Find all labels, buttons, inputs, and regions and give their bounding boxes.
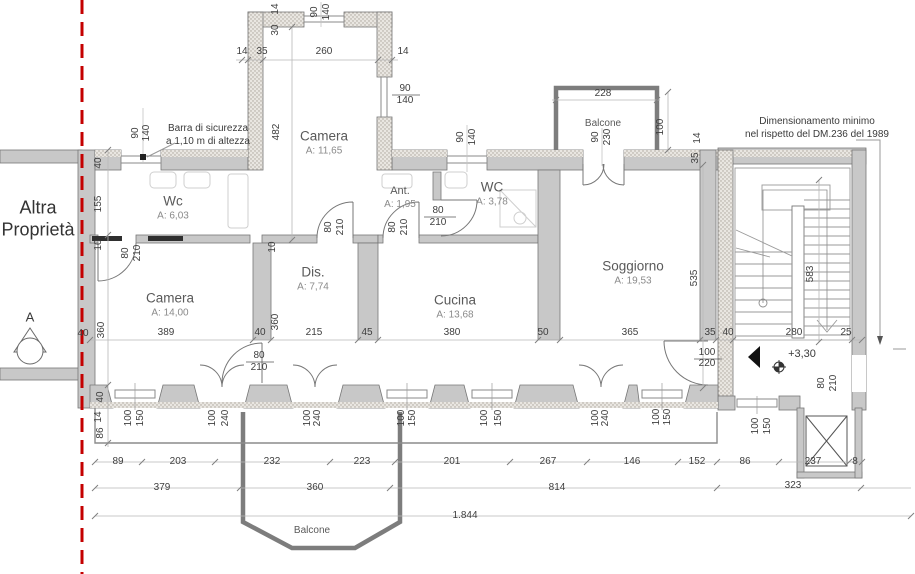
dim-label: 14	[693, 132, 703, 143]
dim-label: 210	[430, 218, 447, 228]
dim-label: 80	[253, 351, 264, 361]
dim-label: 210	[336, 219, 346, 236]
dim-label: 360	[307, 483, 324, 493]
dim-label: 260	[316, 47, 333, 57]
dim-label: 223	[354, 457, 371, 467]
room-area: A: 13,68	[434, 309, 476, 322]
dim-label: 535	[690, 270, 700, 287]
room-area: A: 3,78	[476, 196, 508, 209]
room-area: A: 19,53	[602, 275, 664, 288]
dim-label: 90	[399, 84, 410, 94]
dim-label: 10	[268, 241, 278, 252]
dm-note: Dimensionamento minimo nel rispetto del …	[745, 115, 889, 141]
dim-label: 150	[494, 410, 504, 427]
dim-label: 14	[397, 47, 408, 57]
dim-label: 40	[94, 157, 104, 168]
dim-label: 90	[131, 127, 141, 138]
labels-layer: Altra Proprietà Barra di sicurezza a 1,1…	[0, 0, 915, 574]
dim-label: 100	[124, 410, 134, 427]
dim-label: 100	[480, 410, 490, 427]
section-marker-label: A	[26, 310, 35, 327]
room-name: Wc	[157, 193, 189, 210]
room-area: A: 14,00	[146, 307, 194, 320]
dim-label: 583	[806, 266, 816, 283]
dim-label: 80	[817, 377, 827, 388]
dim-label: 86	[96, 427, 106, 438]
dim-label: 280	[786, 328, 803, 338]
room-label: Balcone	[294, 525, 330, 538]
dim-label: 360	[271, 314, 281, 331]
room-name: WC	[476, 179, 508, 196]
dim-label: 360	[97, 322, 107, 339]
dim-label: 152	[689, 457, 706, 467]
dim-label: 240	[221, 410, 231, 427]
room-label: WCA: 3,78	[476, 179, 508, 208]
dim-label: 89	[112, 457, 123, 467]
dim-label: 40	[254, 328, 265, 338]
floor-plan: Altra Proprietà Barra di sicurezza a 1,1…	[0, 0, 915, 574]
dim-label: 146	[624, 457, 641, 467]
room-area: A: 11,65	[300, 145, 348, 158]
dim-label: 203	[170, 457, 187, 467]
dim-label: 210	[251, 363, 268, 373]
room-name: Ant.	[384, 185, 416, 199]
dim-label: 80	[388, 221, 398, 232]
room-label: WcA: 6,03	[157, 193, 189, 222]
room-label: Ant.A: 1,95	[384, 185, 416, 211]
dim-label: 40	[722, 328, 733, 338]
dim-label: 140	[468, 129, 478, 146]
dim-label: 100	[652, 409, 662, 426]
dim-label: 100	[656, 119, 666, 136]
dim-label: 150	[763, 418, 773, 435]
dim-label: 150	[136, 410, 146, 427]
dim-label: 228	[595, 89, 612, 99]
dim-label: 150	[663, 409, 673, 426]
dim-label: 14	[271, 3, 281, 14]
dim-label: 240	[601, 410, 611, 427]
dim-label: 230	[603, 129, 613, 146]
room-label: Dis.A: 7,74	[297, 264, 329, 293]
dim-label: 80	[432, 206, 443, 216]
dim-label: 100	[751, 418, 761, 435]
dim-label: 210	[829, 375, 839, 392]
room-name: Dis.	[297, 264, 329, 281]
dim-label: 379	[154, 483, 171, 493]
dim-label: 140	[322, 4, 332, 21]
room-label: CameraA: 14,00	[146, 290, 194, 319]
dim-label: 100	[699, 348, 716, 358]
adjacent-property-line2: Proprietà	[1, 219, 74, 241]
dim-label: 30	[271, 24, 281, 35]
dim-label: 14	[236, 47, 247, 57]
dim-label: 35	[256, 47, 267, 57]
security-bar-line2: a 1,10 m di altezza	[166, 135, 250, 148]
dim-label: 201	[444, 457, 461, 467]
room-label: CucinaA: 13,68	[434, 292, 476, 321]
dim-label: 232	[264, 457, 281, 467]
dim-label: 100	[208, 410, 218, 427]
level-label: +3,30	[788, 347, 816, 361]
dim-label: 210	[400, 219, 410, 236]
dim-label: 8	[852, 457, 858, 467]
dm-note-line1: Dimensionamento minimo	[745, 115, 889, 128]
dim-label: 150	[408, 410, 418, 427]
security-bar-note: Barra di sicurezza a 1,10 m di altezza	[166, 122, 250, 148]
dim-label: 323	[785, 481, 802, 491]
dim-label: 389	[158, 328, 175, 338]
dim-label: 90	[310, 6, 320, 17]
dim-label: 50	[537, 328, 548, 338]
dim-label: 45	[361, 328, 372, 338]
room-area: A: 7,74	[297, 281, 329, 294]
dm-note-line2: nel rispetto del DM.236 del 1989	[745, 128, 889, 141]
dim-label: 14	[94, 411, 104, 422]
dim-label: 380	[444, 328, 461, 338]
security-bar-line1: Barra di sicurezza	[166, 122, 250, 135]
dim-label: 814	[549, 483, 566, 493]
room-label: CameraA: 11,65	[300, 128, 348, 157]
dim-label: 210	[133, 245, 143, 262]
dim-label: 240	[313, 410, 323, 427]
dim-label: 237	[805, 457, 822, 467]
room-name: Balcone	[294, 525, 330, 538]
dim-label: 80	[324, 221, 334, 232]
dim-label: 215	[306, 328, 323, 338]
dim-label: 40	[96, 391, 106, 402]
room-label: SoggiornoA: 19,53	[602, 258, 664, 287]
room-name: Soggiorno	[602, 258, 664, 275]
dim-label: 1.844	[452, 511, 477, 521]
dim-label: 100	[397, 410, 407, 427]
dim-label: 140	[397, 96, 414, 106]
room-area: A: 1,95	[384, 199, 416, 212]
room-name: Cucina	[434, 292, 476, 309]
dim-label: 90	[591, 131, 601, 142]
room-name: Camera	[300, 128, 348, 145]
room-name: Balcone	[585, 118, 621, 131]
dim-label: 220	[699, 359, 716, 369]
dim-label: 267	[540, 457, 557, 467]
dim-label: 90	[456, 131, 466, 142]
dim-label: 482	[272, 124, 282, 141]
dim-label: 80	[121, 247, 131, 258]
dim-label: 140	[142, 125, 152, 142]
dim-label: 86	[739, 457, 750, 467]
dim-label: 155	[94, 196, 104, 213]
dim-label: 25	[840, 328, 851, 338]
adjacent-property-line1: Altra	[1, 197, 74, 219]
room-area: A: 6,03	[157, 210, 189, 223]
room-name: Camera	[146, 290, 194, 307]
dim-label: 40	[77, 329, 88, 339]
adjacent-property-label: Altra Proprietà	[1, 197, 74, 240]
dim-label: 35	[691, 152, 701, 163]
dim-label: 10	[94, 239, 104, 250]
room-label: Balcone	[585, 118, 621, 131]
dim-label: 365	[622, 328, 639, 338]
dim-label: 35	[704, 328, 715, 338]
